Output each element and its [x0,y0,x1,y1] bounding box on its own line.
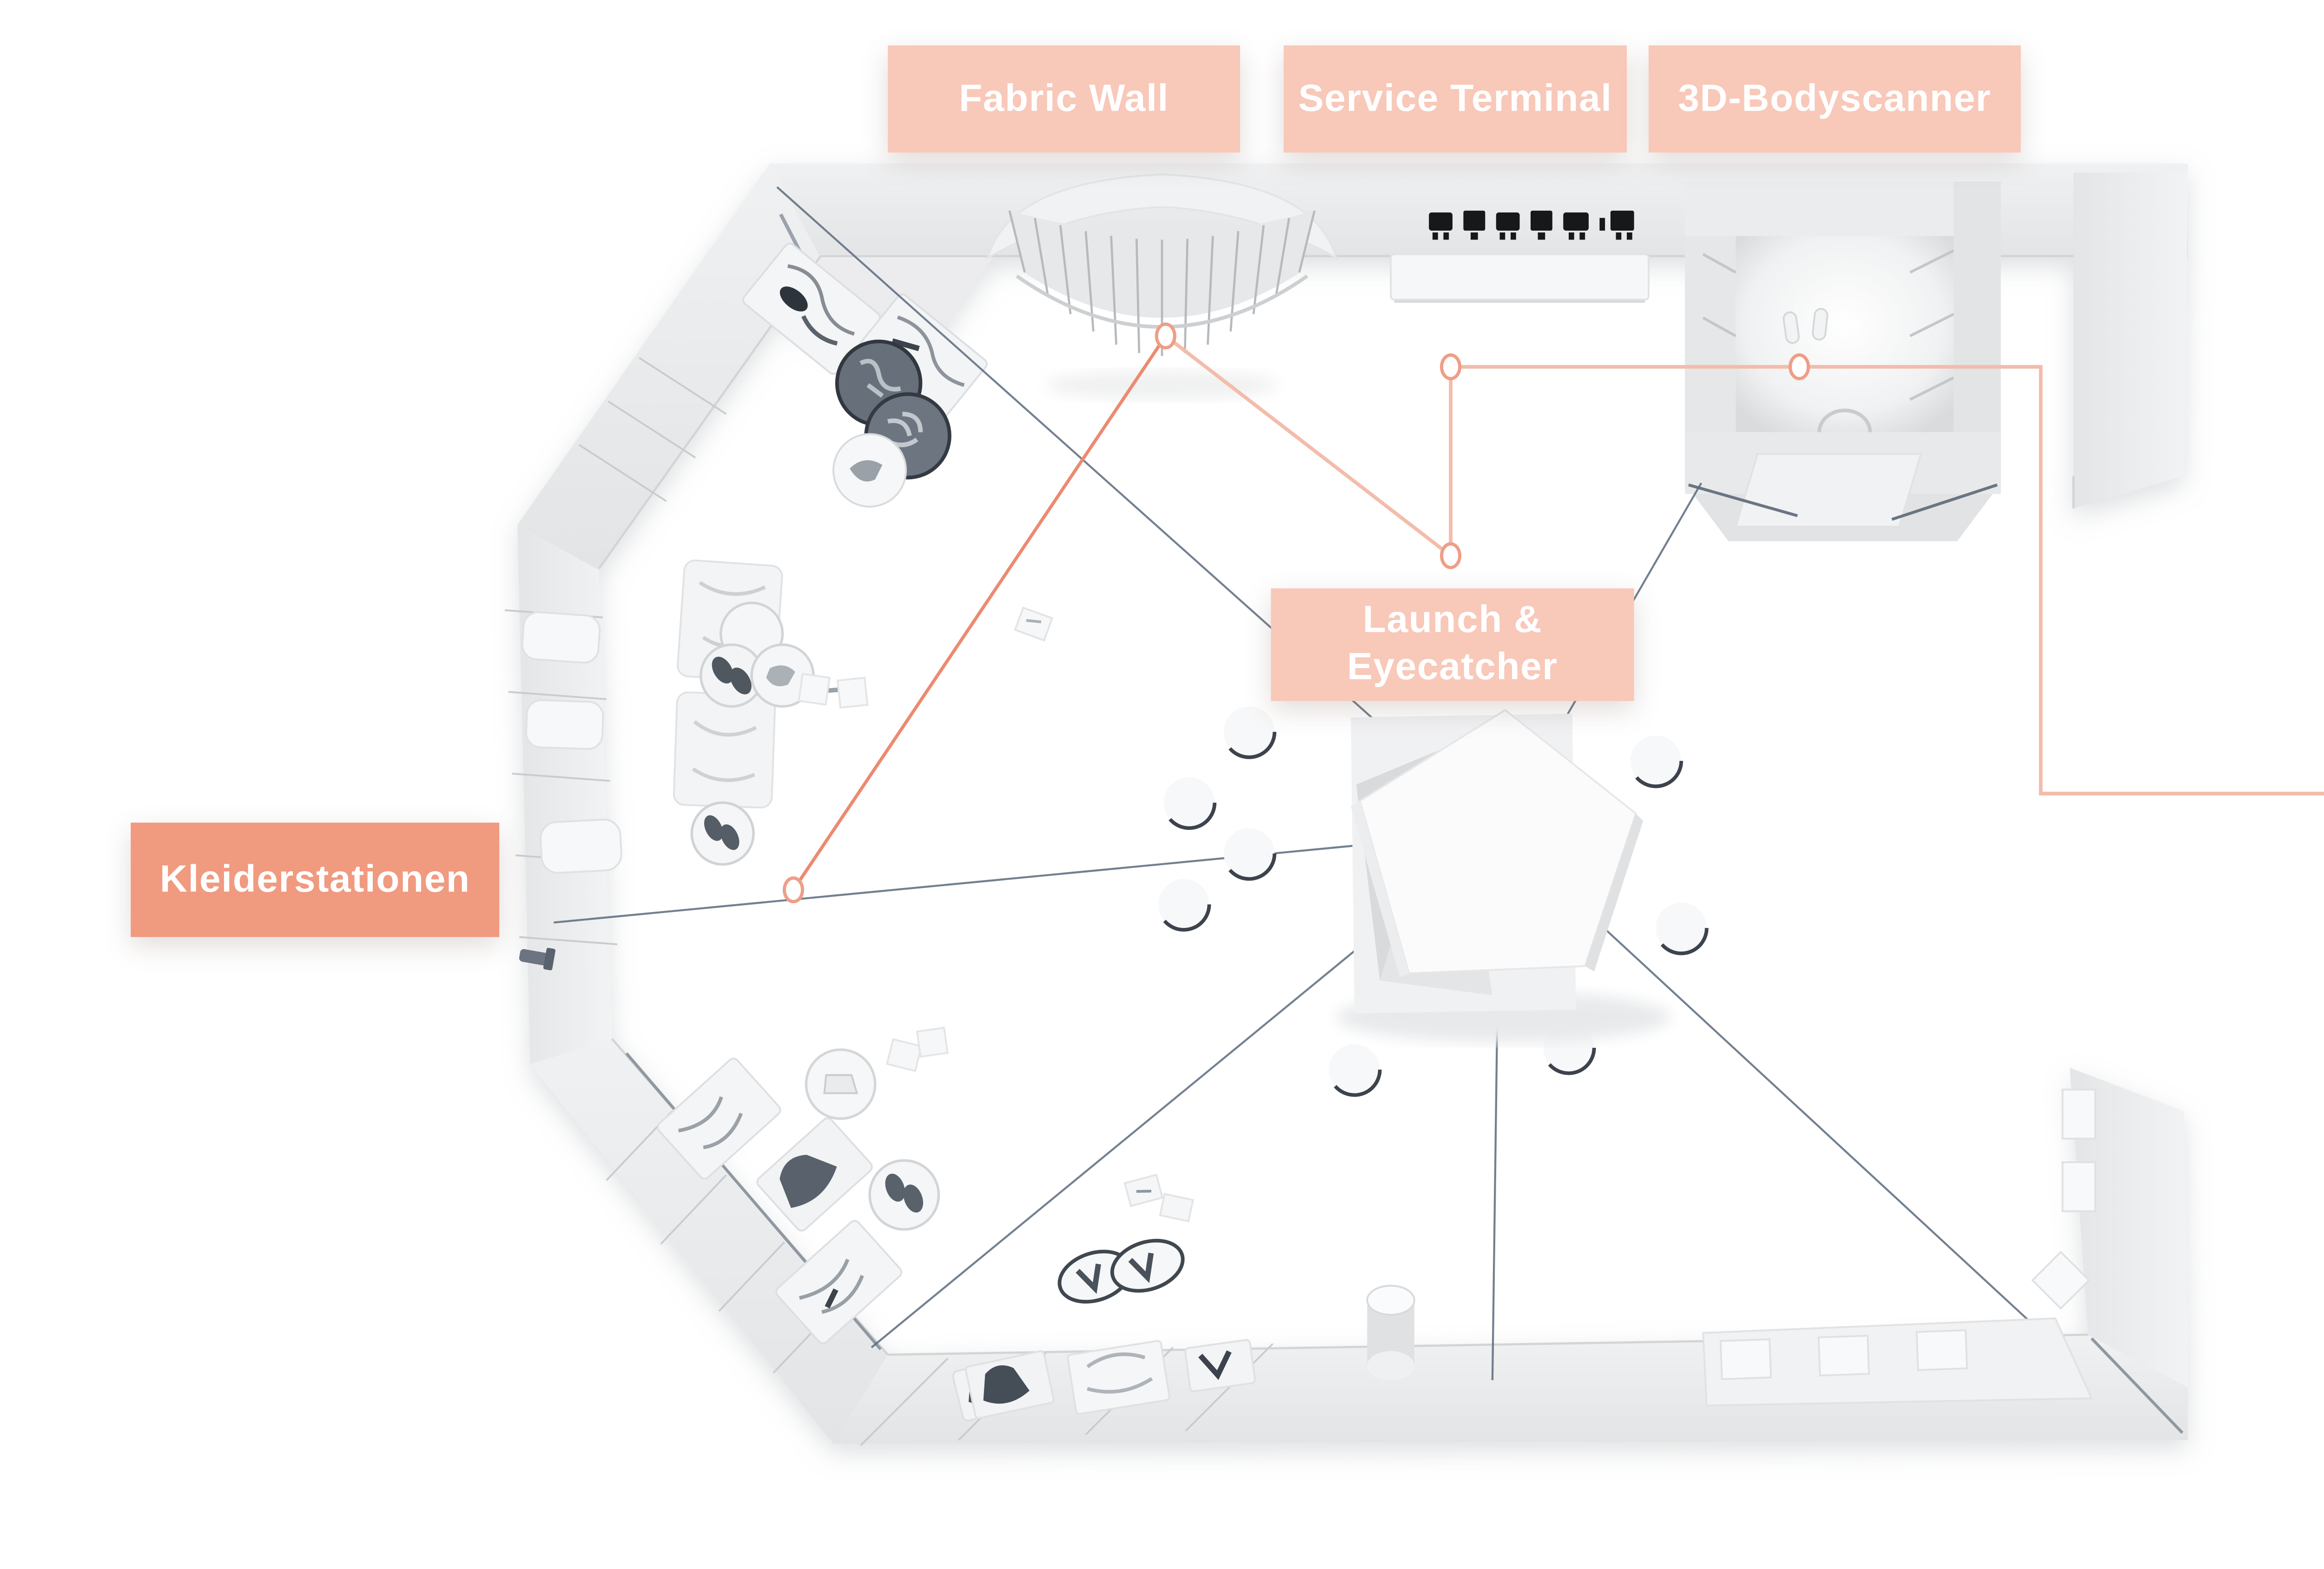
round-table-bag [806,1050,875,1119]
label-kleiderstationen-text: Kleiderstationen [160,856,470,904]
label-fabric-wall: Fabric Wall [888,46,1240,152]
journey-node-bodyscanner [1790,355,1809,379]
label-service-terminal-text: Service Terminal [1298,75,1612,123]
journey-node-kleiderstationen [785,878,803,902]
floorplan-stage: Fabric Wall Service Terminal 3D-Bodyscan… [0,0,2324,1569]
label-kleiderstationen: Kleiderstationen [131,823,499,937]
round-table-white-1 [833,434,906,507]
pentagon-display [1336,710,1670,1042]
floorplan-svg [0,0,2324,1569]
wall-left [517,525,612,1064]
floor-card-1 [1015,608,1052,640]
booth-front-table [1736,454,1921,527]
journey-node-serviceterminal [1442,355,1460,379]
round-table-shoes [692,803,753,865]
label-bodyscanner-text: 3D-Bodyscanner [1678,75,1991,123]
journey-node-mid [1442,544,1460,568]
cylinder-pouf [1367,1286,1414,1380]
garment-panel-2 [673,692,775,808]
label-bodyscanner: 3D-Bodyscanner [1649,46,2021,152]
round-table-shoes-2 [870,1160,938,1229]
label-service-terminal: Service Terminal [1284,46,1627,152]
journey-segment-accent [793,336,1166,890]
bottom-table-3 [1185,1339,1255,1391]
booth-top-wall [1685,182,2001,236]
bodyscanner-booth [1685,182,2001,541]
journey-node-fabricwall [1156,324,1175,348]
floor-card-3 [1160,1194,1193,1221]
label-launch-eyecatcher: Launch & Eyecatcher [1271,589,1634,701]
label-fabric-wall-text: Fabric Wall [959,75,1169,123]
shelf-cards-1 [799,674,868,708]
wall-topleft-diagonal [517,164,820,570]
bench [1703,1090,2095,1406]
display-board-dark-jacket [755,1116,874,1233]
service-counter [1391,254,1649,300]
wall-right-upper [2073,172,2188,509]
label-launch-line2: Eyecatcher [1347,645,1558,692]
label-launch-line1: Launch & [1363,597,1542,645]
floor-card-2 [1125,1175,1162,1206]
shelf-cards-2 [887,1028,947,1071]
